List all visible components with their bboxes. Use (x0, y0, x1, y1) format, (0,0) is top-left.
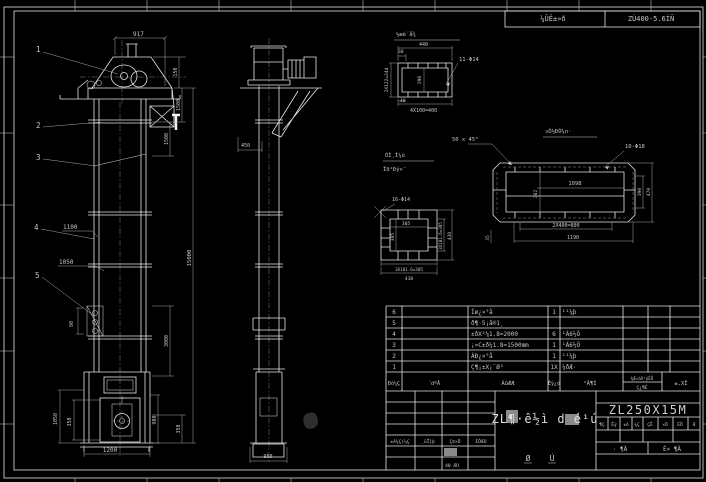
tiny-cells-row: ¶Ç Êý ±ê ¼Ç ÇÊ ×Ö ÈÕ Æ (599, 420, 695, 428)
dim-inner-h: 305 (390, 233, 396, 242)
title-glyph-left: Ø (526, 453, 531, 463)
selected-cell-highlight (444, 448, 457, 456)
row4-no: 4 (392, 331, 396, 338)
weld-note-line2: Ïð²Ðý×¨ (383, 166, 406, 173)
table-row: 1 Ç¶¡±X¡¯Ø³ 1X ¼ðÆ· (392, 364, 576, 371)
dim-bottom-spacing: 3X101.6=305 (395, 267, 423, 272)
row5-name: ð¶·5¡ã®1¸ (471, 320, 504, 327)
rev-sign-label: Ç©×Ö (449, 438, 460, 445)
rev-date-label: ÈÕÆÚ (475, 437, 486, 445)
col-no: Ðò¼Ç (388, 380, 400, 387)
dim-15000: 15000 (187, 250, 193, 267)
detail-flange: ½æê´å¾ 440 30 2X122=244 296 11-Φ14 40 4X… (384, 31, 480, 114)
tiny-cell-4: ÇÊ (647, 420, 653, 428)
dim-3000: 3000 (164, 335, 170, 347)
chamfer-note-text: 50 x 45° (452, 137, 479, 143)
rev-mark-label: ±ê¼Ç(¼Ç (390, 438, 410, 445)
dim-450: 450 (241, 143, 250, 149)
dim-390: 390 (637, 188, 643, 197)
balloon-4: 4 (34, 223, 39, 232)
dim-440: 440 (419, 42, 428, 48)
cad-drawing-canvas[interactable]: ¼ÛÊ±»ð ZÙ400-5.6ÍÑ (0, 0, 706, 482)
tiny-cell-1: Êý (611, 420, 617, 428)
dim-1500b: 1500 (164, 133, 170, 145)
dim-right-total: 430 (447, 232, 453, 241)
dim-296: 296 (417, 76, 423, 85)
dim-350: 350 (176, 424, 182, 433)
table-row: 2 ÁÐ¿×°å 1 ¹¹¼þ (392, 353, 577, 360)
row6-name: Íø¿×°å (471, 308, 493, 316)
balloon-2: 2 (36, 121, 41, 130)
title-glyph-right: Ú (550, 452, 555, 463)
detail-square-dimensions: 305 305 3X101.6=305 430 3X101.6=305 430 (381, 210, 454, 282)
table-header-row: Ðò¼Ç ´dºÅ ÃûÆÆ Êý¿ó ²Ä¶Ì ¼Æ»áX¹ýÈÕ Ç¿¶È … (388, 376, 688, 391)
row6-qty: 1 (552, 309, 556, 316)
detail-long-title: ¤Ò½ÐÒ¼n· (545, 128, 572, 135)
dim-bottom-total: 430 (405, 276, 414, 282)
col-material: ²Ä¶Ì (583, 380, 596, 387)
row2-qty: 1 (552, 353, 556, 360)
weld-note: ÓÌ¸Ì¼ú Ïð²Ðý×¨ (383, 152, 434, 173)
row2-no: 2 (392, 353, 396, 360)
col-weight: ±,XÎ (674, 380, 687, 387)
dim-1190: 1190 (567, 235, 579, 241)
row3-no: 3 (392, 342, 396, 349)
detail-flange-title: ½æê´å¾ (396, 31, 416, 38)
tiny-cell-7: Æ (693, 422, 696, 428)
table-row: 5 ð¶·5¡ã®1¸ (392, 320, 503, 327)
dim-362: 362 (533, 190, 539, 199)
dim-917: 917 (133, 31, 144, 38)
col-name: ÃûÆÆ (501, 380, 515, 387)
revision-row: ±ê¼Ç(¼Ç ¸üÎļþ Ç©×Ö ÈÕÆÚ (390, 437, 486, 445)
side-view-dimensions: 450 950 (238, 137, 287, 463)
dim-1500a: 1500 (176, 99, 182, 111)
tiny-cell-2: ±ê (623, 421, 629, 428)
dim-bucket-90: 90 (69, 321, 75, 327)
dim-inner-w: 305 (402, 221, 411, 227)
tiny-cell-6: ÈÕ (677, 420, 683, 428)
holes-10-d18: 10-Φ18 (625, 144, 645, 150)
dim-right-spacing: 3X101.6=305 (438, 222, 443, 250)
sheet-count-row: · ¶Ä È× ¶Ä (613, 445, 682, 453)
detail-long-flange: ¤Ò½ÐÒ¼n· 10-Φ18 1098 362 390 470 2X400=8… (485, 128, 654, 243)
col-qty: Êý¿ó (548, 379, 560, 387)
table-row: 6 Íø¿×°å 1 ¹¹¼þ (392, 308, 577, 316)
col-code: ´dºÅ (428, 380, 440, 387)
sheet-count-right: È× ¶Ä (663, 445, 681, 453)
row2-material: ¹¹¼þ (562, 353, 577, 360)
date-cell: 40 ÆÚ (445, 462, 459, 469)
dim-35: 35 (485, 235, 491, 241)
row1-name: Ç¶¡±X¡¯Ø³ (471, 364, 504, 371)
row1-material: ¼ðÆ· (562, 364, 576, 371)
dim-950: 950 (263, 454, 272, 460)
row6-material: ¹¹¼þ (562, 309, 577, 316)
col-note-bottom: Ç¿¶È (636, 383, 647, 391)
row3-material: ¹Ä6½Ö (562, 342, 580, 349)
row2-name: ÁÐ¿×°å (471, 353, 493, 360)
front-view: 917 1100 1050 90 150 1500 1500 3000 350 … (34, 31, 196, 458)
tiny-cell-5: ×Ö (662, 421, 668, 428)
balloon-5: 5 (35, 271, 40, 280)
dim-base-1200: 1200 (103, 447, 118, 454)
row4-qty: 6 (552, 331, 556, 338)
header-cell-left: ¼ÛÊ±»ð (540, 14, 565, 23)
sheet-header-strip: ¼ÛÊ±»ð ZÙ400-5.6ÍÑ (505, 11, 700, 27)
model-number: ZL250X15M (609, 403, 688, 417)
dim-boot-left-inner: 350 (67, 417, 73, 426)
dim-1098: 1098 (568, 181, 581, 187)
holes-16-d14: 16-Φ14 (392, 197, 410, 203)
cad-sheet: ¼ÛÊ±»ð ZÙ400-5.6ÍÑ (0, 0, 706, 482)
row3-qty: 1 (552, 342, 556, 349)
dim-boot-left: 1050 (53, 413, 59, 425)
row3-name: ¡¤C±ð¼1.8=1500mm (471, 342, 529, 349)
dim-40: 40 (400, 98, 406, 104)
detail-long-dimensions: 1098 362 390 470 2X400=800 1190 35 (485, 163, 654, 243)
holes-11-d14: 11-Φ14 (459, 57, 480, 63)
bucket-detail (87, 306, 103, 336)
parts-table: 6 Íø¿×°å 1 ¹¹¼þ 5 ð¶·5¡ã®1¸ 4 ±ðX²¼1.8=2… (386, 306, 700, 470)
side-view: 450 950 (238, 38, 322, 463)
title-block: ±ê¼Ç(¼Ç ¸üÎļþ Ç©×Ö ÈÕÆÚ 40 ÆÚ ZL¶·ê½ì d … (386, 391, 700, 470)
callout-1100: 1100 (63, 224, 78, 231)
dim-boot-right: 900 (152, 415, 158, 424)
drawing-name: ZL¶·ê½ì d é¹ú (492, 412, 599, 426)
header-cell-right: ZÙ400-5.6ÍÑ (628, 14, 674, 23)
row1-qty: 1X (550, 364, 558, 371)
dim-150: 150 (173, 67, 179, 76)
row5-no: 5 (392, 320, 396, 327)
weld-note-line1: ÓÌ¸Ì¼ú (385, 152, 405, 159)
dim-2x122: 2X122=244 (384, 67, 390, 92)
dim-4x100: 4X100=400 (410, 108, 437, 114)
row4-material: ¹Ä6½Ö (562, 331, 580, 338)
dim-30: 30 (398, 49, 404, 55)
chamfer-note: 50 x 45° (452, 137, 512, 165)
tiny-cell-0: ¶Ç (599, 422, 605, 428)
balloon-labels: 1 2 3 4 5 (34, 45, 118, 316)
balloon-3: 3 (36, 153, 41, 162)
rev-docno-label: ¸üÎļþ (421, 438, 435, 445)
row4-name: ±ðX²¼1.8=2000 (471, 331, 518, 338)
callout-1050: 1050 (59, 259, 74, 266)
table-row: 4 ±ðX²¼1.8=2000 6 ¹Ä6½Ö (392, 331, 580, 338)
balloon-1: 1 (36, 45, 41, 54)
col-note-top: ¼Æ»áX¹ýÈÕ (631, 376, 654, 382)
dim-470: 470 (646, 188, 652, 197)
sheet-count-left: · ¶Ä (613, 446, 628, 453)
detail-square-flange: 16-Φ14 305 305 3X101.6=305 430 3X101.6=3… (374, 197, 454, 282)
table-row: 3 ¡¤C±ð¼1.8=1500mm 1 ¹Ä6½Ö (392, 342, 580, 349)
row6-no: 6 (392, 309, 396, 316)
dim-2x400: 2X400=800 (552, 223, 579, 229)
tiny-cell-3: ¼Ç (634, 422, 640, 428)
cursor-artifact (303, 413, 318, 429)
row1-no: 1 (392, 364, 396, 371)
